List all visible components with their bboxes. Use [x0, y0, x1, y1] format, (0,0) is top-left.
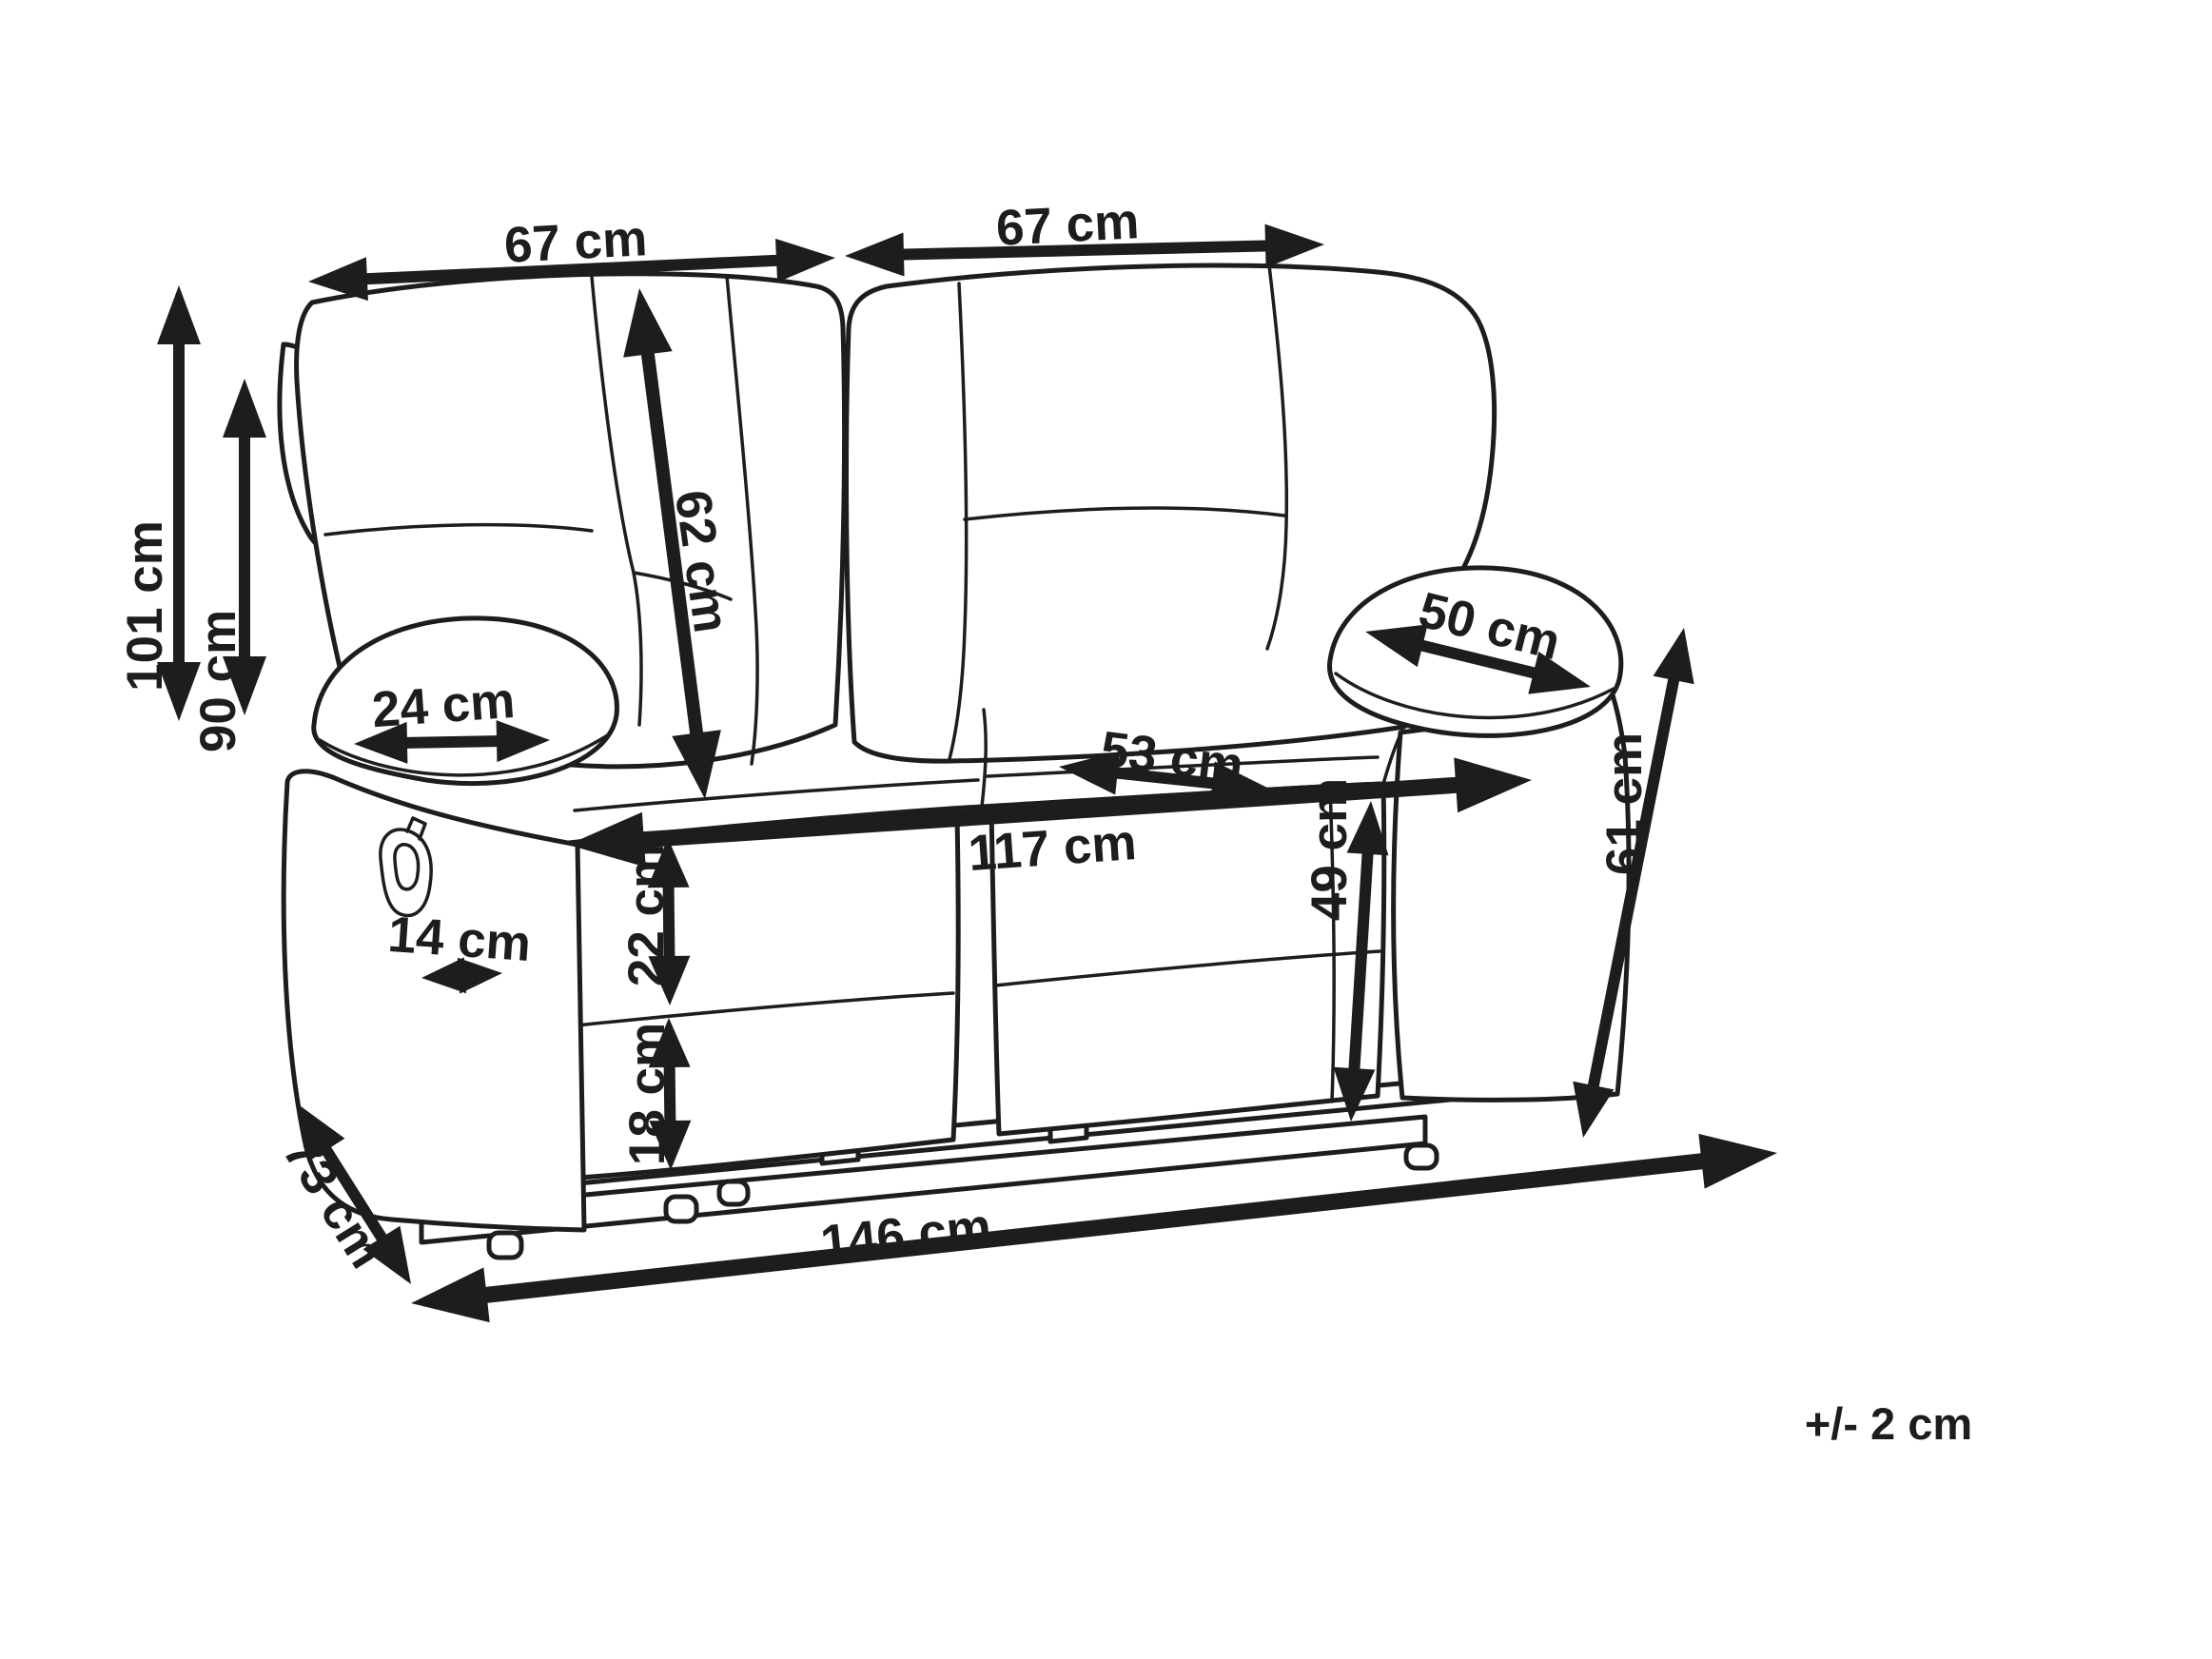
dim-label-armrest-top-width: 24 cm [370, 673, 517, 738]
dim-label-backrest-width-left: 67 cm [502, 210, 648, 274]
dim-label-armrest-height: 61 cm [1596, 732, 1653, 875]
sofa-foot-4 [1406, 1145, 1437, 1168]
dim-label-overall-height: 101 cm [117, 520, 173, 692]
sofa-foot-3 [719, 1181, 748, 1204]
seat-crease-left [575, 780, 978, 810]
sofa-foot-1 [489, 1233, 521, 1258]
armrest-right-body [1394, 681, 1629, 1100]
sofa-dimension-diagram: 67 cm 67 cm 101 cm 90 cm 62 cm 24 cm 50 … [0, 0, 2212, 1659]
dim-label-seat-width: 117 cm [967, 814, 1139, 882]
dim-label-seat-height: 49 cm [1302, 778, 1358, 921]
dim-label-overall-width: 146 cm [818, 1199, 994, 1272]
sofa-drawing [280, 265, 1629, 1258]
sofa-foot-2 [666, 1197, 696, 1221]
dim-label-armrest-front-width: 14 cm [386, 907, 533, 972]
dim-label-base-height: 18 cm [619, 1023, 675, 1165]
dim-label-seat-cushion-height: 22 cm [618, 844, 675, 986]
tolerance-note: +/- 2 cm [1805, 1398, 1972, 1449]
dimension-diagram-page: 67 cm 67 cm 101 cm 90 cm 62 cm 24 cm 50 … [0, 0, 2212, 1659]
dim-label-backrest-width-right: 67 cm [994, 193, 1140, 257]
dim-label-backrest-height: 90 cm [190, 610, 246, 752]
recliner-handle-hole [395, 845, 419, 889]
